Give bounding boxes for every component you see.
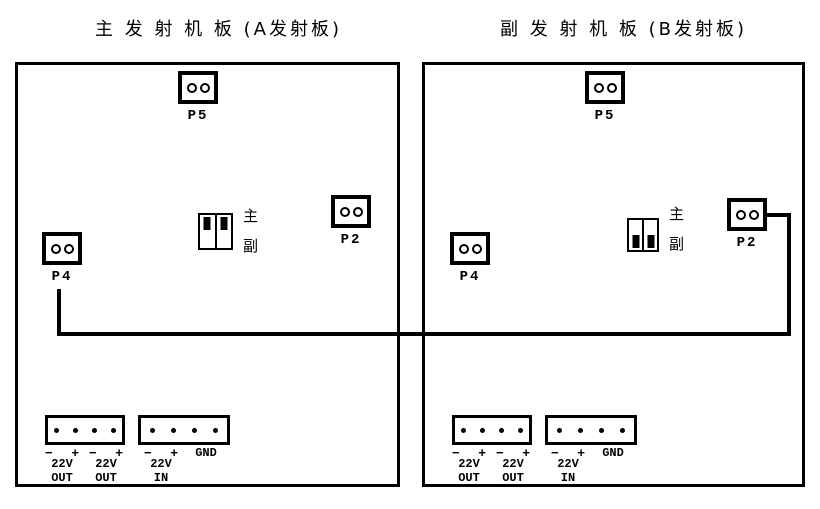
mode-jumper: [198, 213, 233, 250]
power-label-group: −+ 22V OUT: [84, 448, 128, 484]
pin-hole: [340, 207, 350, 217]
p4a-to-p2b-cable-segment-to-p2: [767, 213, 791, 217]
power-label-group: −+ 22V IN: [546, 448, 590, 484]
board-a-title: 主 发 射 机 板 (A发射板): [95, 15, 342, 41]
connector-p4: [450, 232, 490, 265]
p4a-to-p2b-cable-segment-vertical-left: [57, 289, 61, 336]
connector-p2: [727, 198, 767, 231]
direction-label: OUT: [40, 473, 84, 484]
p4a-to-p2b-cable-segment-vertical-right: [787, 213, 791, 336]
jumper-label-sub: 副: [243, 238, 258, 254]
transmitter-board-b: P5 P4 P2 主 副 −+ 22V OUT −+ 22V OUT: [422, 62, 805, 487]
pin-hole: [353, 207, 363, 217]
pin-hole: [472, 244, 482, 254]
pin-dot: [73, 428, 78, 433]
pin-dot: [578, 428, 583, 433]
pin-dot: [518, 428, 523, 433]
direction-label: OUT: [491, 473, 535, 484]
connector-p5-label: P5: [585, 108, 625, 124]
direction-label: IN: [546, 473, 590, 484]
pin-hole: [459, 244, 469, 254]
pin-hole: [607, 83, 617, 93]
jumper-plug: [632, 235, 639, 248]
connector-p2-label: P2: [727, 235, 767, 251]
pin-hole: [594, 83, 604, 93]
pin-dot: [54, 428, 59, 433]
pin-hole: [187, 83, 197, 93]
board-b-title: 副 发 射 机 板 (B发射板): [500, 15, 747, 41]
power-in-connector: [545, 415, 637, 445]
pin-hole: [749, 210, 759, 220]
jumper-cell: [629, 220, 644, 250]
pin-dot: [499, 428, 504, 433]
power-out-connector: [452, 415, 532, 445]
pin-dot: [192, 428, 197, 433]
jumper-label-main: 主: [243, 208, 258, 224]
gnd-label: GND: [184, 448, 228, 459]
power-out-connector: [45, 415, 125, 445]
pin-hole: [200, 83, 210, 93]
pin-dot: [557, 428, 562, 433]
pin-dot: [620, 428, 625, 433]
pin-hole: [736, 210, 746, 220]
jumper-label-sub: 副: [669, 236, 684, 252]
power-label-group: −+ 22V OUT: [40, 448, 84, 484]
direction-label: IN: [139, 473, 183, 484]
direction-label: OUT: [84, 473, 128, 484]
pin-dot: [150, 428, 155, 433]
transmitter-board-a: P5 P2 P4 主 副 −+ 22V OUT −+ 22V OUT: [15, 62, 400, 487]
jumper-plug: [220, 217, 227, 230]
connector-p5-label: P5: [178, 108, 218, 124]
connector-p4-label: P4: [450, 269, 490, 285]
power-label-group: −+ 22V OUT: [447, 448, 491, 484]
jumper-plug: [204, 217, 211, 230]
pin-dot: [480, 428, 485, 433]
connector-p5: [178, 71, 218, 104]
jumper-cell: [217, 215, 232, 248]
connector-p2: [331, 195, 371, 228]
power-in-connector: [138, 415, 230, 445]
jumper-cell: [644, 220, 657, 250]
pin-dot: [461, 428, 466, 433]
pin-hole: [51, 244, 61, 254]
pin-dot: [599, 428, 604, 433]
connector-p4: [42, 232, 82, 265]
jumper-plug: [647, 235, 654, 248]
power-label-group: −+ 22V OUT: [491, 448, 535, 484]
connector-p2-label: P2: [331, 232, 371, 248]
pin-dot: [171, 428, 176, 433]
power-label-group: −+ 22V IN: [139, 448, 183, 484]
gnd-label: GND: [591, 448, 635, 459]
jumper-cell: [200, 215, 217, 248]
direction-label: OUT: [447, 473, 491, 484]
connector-p4-label: P4: [42, 269, 82, 285]
pin-dot: [92, 428, 97, 433]
pin-dot: [213, 428, 218, 433]
mode-jumper: [627, 218, 659, 252]
p4a-to-p2b-cable-segment-horizontal: [57, 332, 791, 336]
jumper-label-main: 主: [669, 206, 684, 222]
pin-dot: [111, 428, 116, 433]
pin-hole: [64, 244, 74, 254]
connector-p5: [585, 71, 625, 104]
